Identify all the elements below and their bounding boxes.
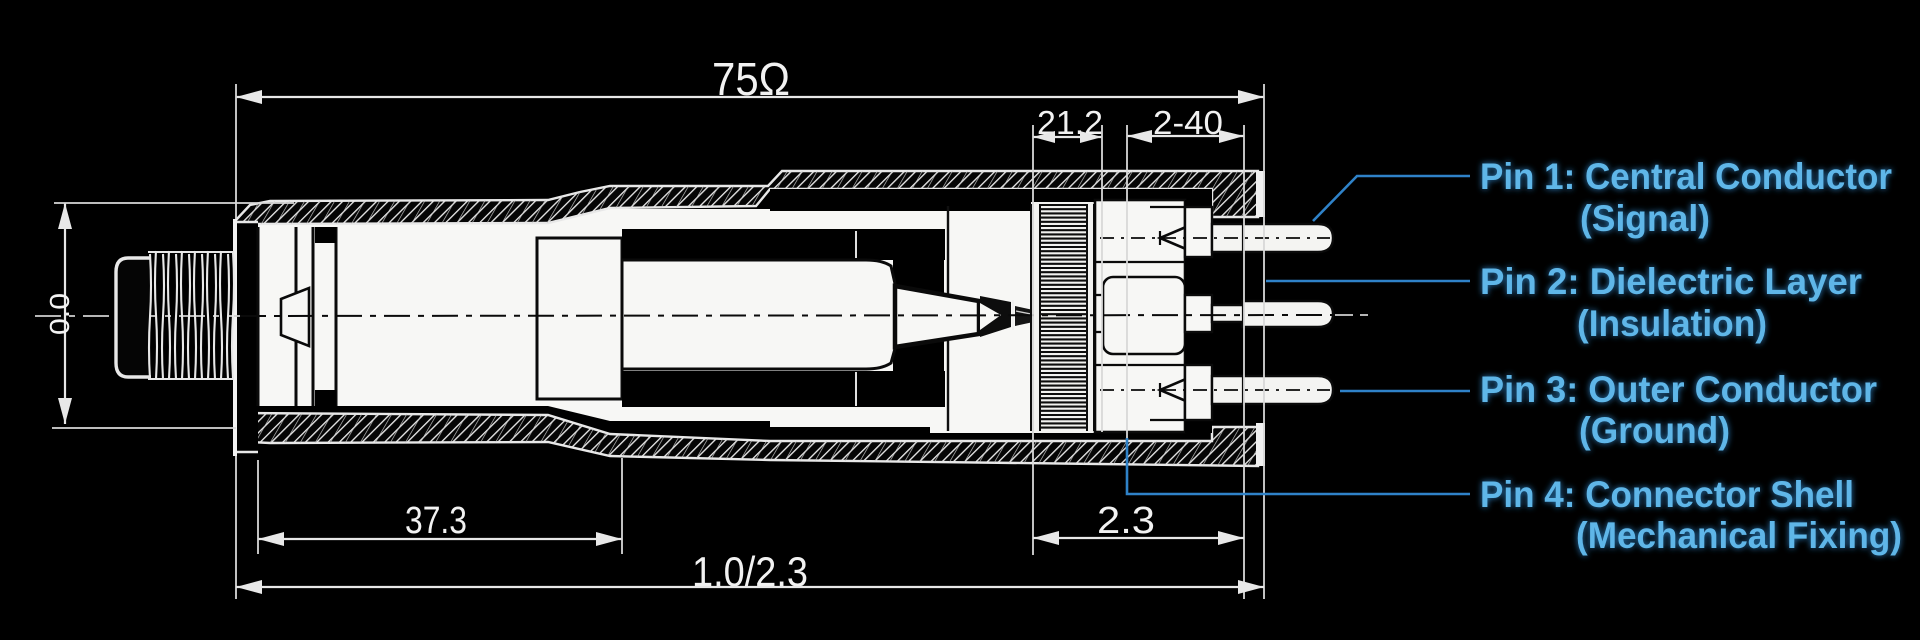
svg-text:37.3: 37.3 [405, 500, 467, 542]
svg-text:Pin 2: Dielectric Layer: Pin 2: Dielectric Layer [1480, 261, 1862, 302]
svg-text:Pin 4: Connector Shell: Pin 4: Connector Shell [1480, 474, 1854, 515]
svg-text:0.0: 0.0 [44, 293, 75, 335]
svg-text:75Ω: 75Ω [712, 53, 790, 105]
svg-text:Pin 1: Central Conductor: Pin 1: Central Conductor [1480, 156, 1892, 197]
svg-text:(Signal): (Signal) [1580, 198, 1710, 239]
svg-text:Pin 3: Outer Conductor: Pin 3: Outer Conductor [1480, 369, 1877, 410]
svg-text:(Insulation): (Insulation) [1577, 303, 1767, 344]
svg-text:(Ground): (Ground) [1579, 410, 1730, 451]
svg-text:(Mechanical Fixing): (Mechanical Fixing) [1576, 515, 1902, 556]
svg-text:2.3: 2.3 [1097, 500, 1155, 542]
